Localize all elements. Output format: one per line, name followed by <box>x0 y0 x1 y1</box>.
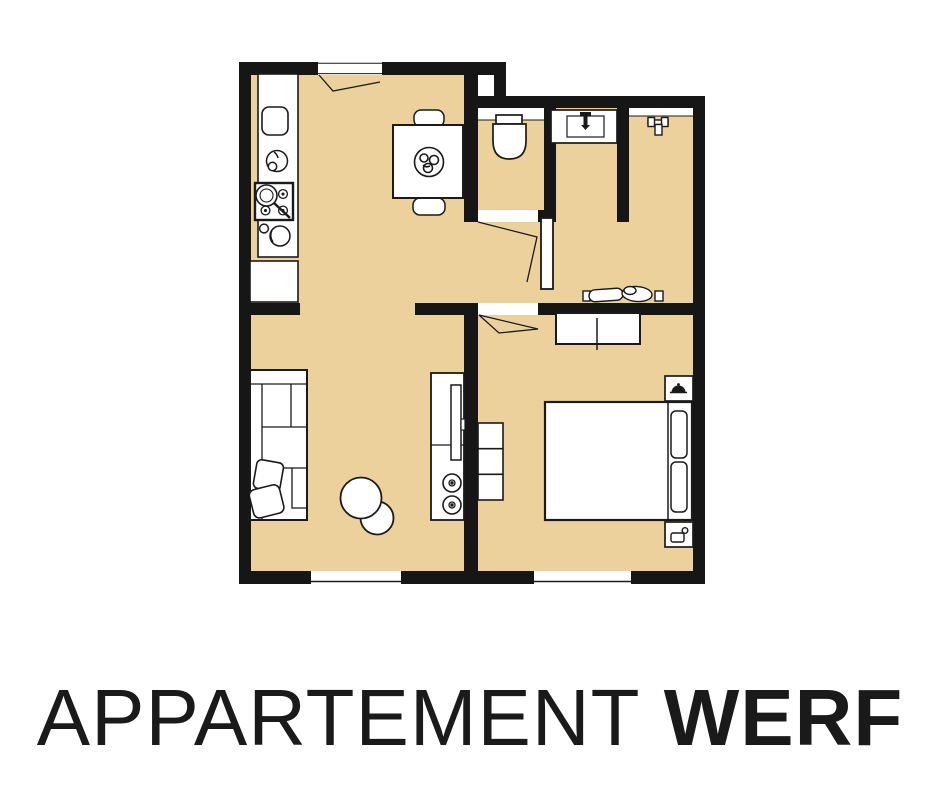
window-icon <box>311 571 401 584</box>
bathroom-furniture <box>551 110 617 143</box>
kitchen-cabinet <box>250 261 298 302</box>
window-icon <box>318 62 382 75</box>
kitchen-sink-icon <box>267 151 288 172</box>
wall-dining-wc <box>464 62 478 222</box>
kitchen-furniture <box>250 74 298 302</box>
exterior-notch <box>478 75 494 96</box>
nightstand-top <box>665 376 693 401</box>
speaker-icon <box>443 474 461 492</box>
toilet-icon <box>493 115 526 159</box>
speaker-icon <box>443 496 461 514</box>
wall-bath-shower <box>617 96 629 222</box>
washbasin-icon <box>551 110 617 143</box>
fridge-icon <box>262 107 288 135</box>
sideboard-icon <box>556 313 640 350</box>
tv-cabinet-icon <box>431 373 465 520</box>
plan-title-separator <box>640 673 663 762</box>
plan-title-bold: WERF <box>664 673 904 762</box>
pillow-icon <box>671 462 687 512</box>
window-icon <box>534 571 631 584</box>
plan-title: APPARTEMENT WERF <box>0 676 940 760</box>
nightstand-bottom <box>665 522 693 547</box>
cushion-icon <box>248 484 285 520</box>
wall-mid-left <box>251 303 300 315</box>
wall-right <box>693 96 705 584</box>
floor-plan-drawing <box>0 0 940 664</box>
drawer-unit-icon <box>478 423 503 500</box>
dining-table-icon <box>393 125 463 198</box>
floor-plan-page: APPARTEMENT WERF <box>0 0 940 794</box>
wall-living-bedroom <box>464 303 478 584</box>
shower-top-band <box>629 108 693 116</box>
wc-furniture <box>493 115 526 159</box>
tv-icon <box>451 385 461 460</box>
sofa-icon <box>248 370 307 520</box>
bedroom-door-threshold <box>478 303 538 315</box>
door-leaf-icon <box>541 218 553 289</box>
wc-door-threshold <box>478 210 538 222</box>
pouf-icon <box>341 478 382 519</box>
wall-top-right-block <box>476 96 705 108</box>
floor-passage <box>464 222 480 303</box>
chair-icon <box>413 198 445 215</box>
plan-title-light: APPARTEMENT <box>37 673 641 762</box>
stove-icon <box>255 183 293 220</box>
bed-icon <box>545 402 692 520</box>
pillow-icon <box>671 411 687 458</box>
